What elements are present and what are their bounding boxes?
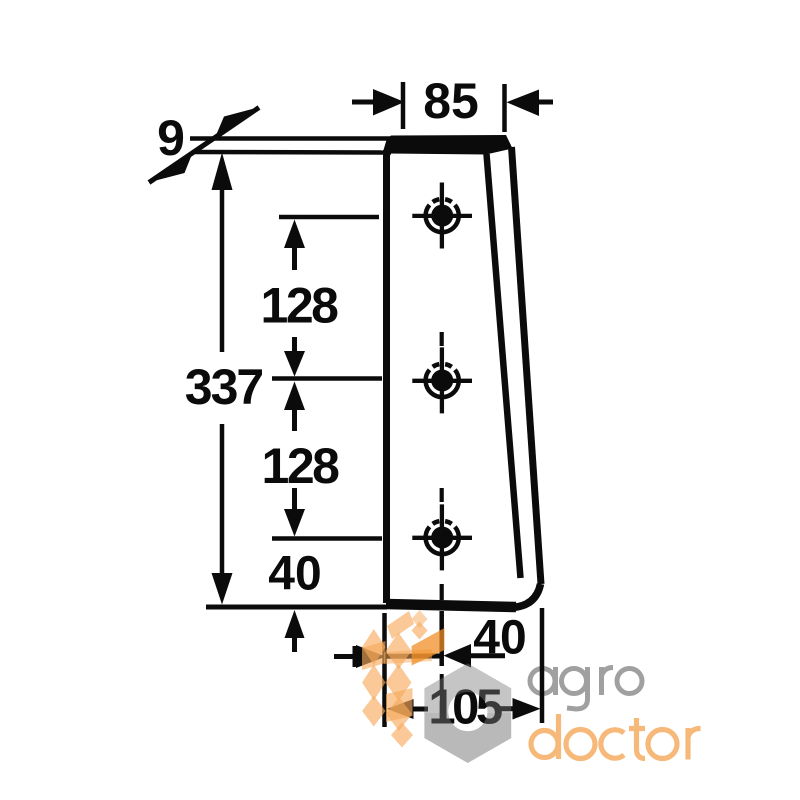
svg-text:40: 40 <box>473 612 526 665</box>
svg-text:128: 128 <box>261 278 339 334</box>
svg-text:128: 128 <box>262 438 340 494</box>
svg-text:337: 337 <box>185 359 263 415</box>
svg-text:40: 40 <box>268 548 321 601</box>
svg-text:9: 9 <box>157 110 185 166</box>
svg-text:85: 85 <box>423 73 479 129</box>
